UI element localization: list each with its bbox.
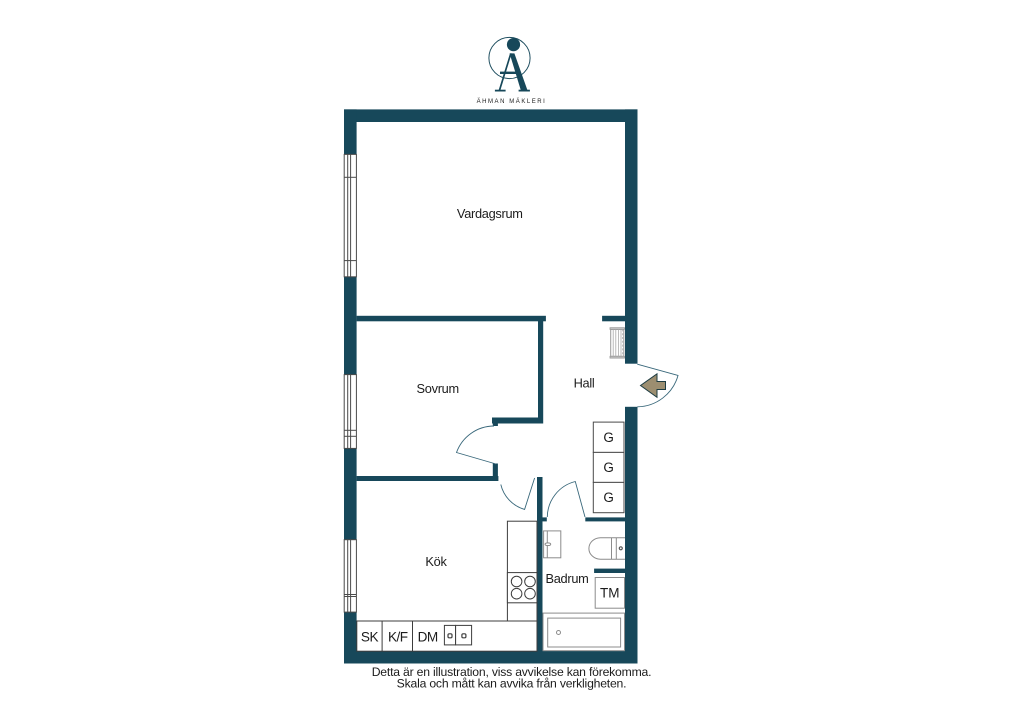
- svg-text:Kök: Kök: [425, 554, 447, 569]
- svg-text:K/F: K/F: [388, 629, 408, 644]
- svg-text:G: G: [603, 430, 614, 445]
- svg-text:G: G: [603, 490, 614, 505]
- svg-text:TM: TM: [600, 586, 620, 601]
- svg-text:DM: DM: [418, 629, 438, 644]
- svg-text:Skala och mått kan avvika från: Skala och mått kan avvika från verklighe…: [397, 676, 627, 690]
- svg-text:ÄHMAN MÄKLERI: ÄHMAN MÄKLERI: [477, 98, 547, 105]
- svg-text:SK: SK: [361, 629, 379, 644]
- svg-text:Sovrum: Sovrum: [417, 381, 459, 396]
- svg-text:Badrum: Badrum: [545, 571, 588, 586]
- svg-text:Vardagsrum: Vardagsrum: [457, 206, 523, 221]
- svg-text:G: G: [603, 460, 614, 475]
- svg-text:Hall: Hall: [574, 376, 595, 391]
